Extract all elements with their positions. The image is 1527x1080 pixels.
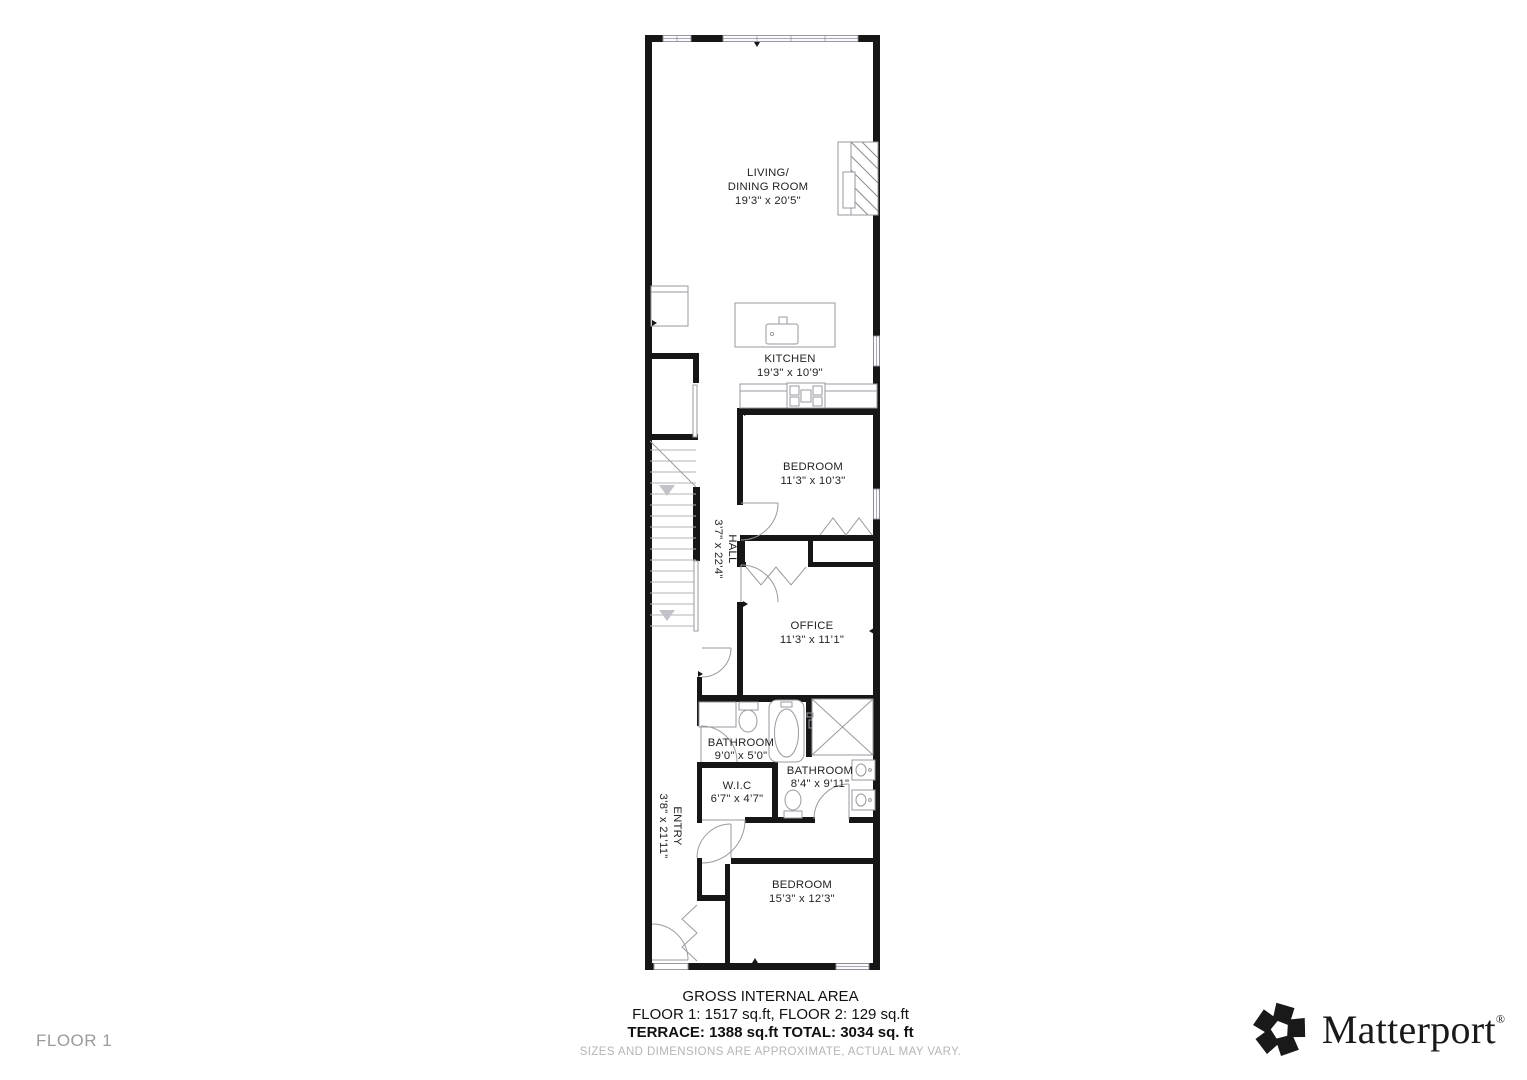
room-label-living-dining-line1: LIVING/ (747, 167, 790, 179)
staircase (650, 441, 698, 631)
terrace-total-line: TERRACE: 1388 sq.ft TOTAL: 3034 sq. ft (580, 1024, 962, 1042)
gross-internal-area-block: GROSS INTERNAL AREA FLOOR 1: 1517 sq.ft,… (580, 988, 962, 1060)
room-dims-office: 11’3" x 11’1" (780, 634, 844, 646)
bathroom2-sinks (852, 760, 875, 810)
fireplace (838, 129, 878, 215)
room-label-entry: ENTRY (671, 806, 683, 846)
kitchen-island (735, 303, 835, 347)
floor-number-label: FLOOR 1 (36, 1031, 112, 1051)
room-dims-bathroom-2: 8’4" x 9’11" (791, 778, 850, 790)
dimensions-disclaimer: SIZES AND DIMENSIONS ARE APPROXIMATE, AC… (580, 1044, 962, 1060)
gross-internal-area-title: GROSS INTERNAL AREA (580, 988, 962, 1006)
room-dims-bedroom-1: 11’3" x 10’3" (780, 475, 845, 487)
front-door-threshold (654, 964, 688, 970)
room-dims-entry: 3’8" x 21’11" (657, 793, 669, 858)
room-label-living-dining-line2: DINING ROOM (728, 181, 809, 193)
floorplan-page: LIVING/ DINING ROOM 19’3" x 20’5" KITCHE… (0, 0, 1527, 1080)
room-dims-wic: 6’7" x 4’7" (711, 793, 764, 805)
kitchen-counter-cooktop (740, 383, 877, 408)
bathroom1-toilet (739, 702, 758, 732)
room-dims-hall: 3’7" x 22’4" (712, 519, 724, 578)
room-label-bathroom-2: BATHROOM (787, 765, 853, 777)
bathroom1-vanity (699, 702, 736, 727)
shower (807, 699, 873, 755)
pantry-sliding-door (693, 385, 697, 437)
matterport-wordmark: Matterport (1322, 1007, 1496, 1052)
room-label-hall: HALL (726, 534, 738, 563)
room-label-kitchen: KITCHEN (764, 353, 815, 365)
matterport-pinwheel-icon (1251, 1000, 1309, 1058)
registered-trademark-symbol: ® (1496, 1012, 1505, 1026)
matterport-logo: Matterport® (1251, 1000, 1505, 1058)
room-label-wic: W.I.C (723, 780, 752, 792)
room-label-office: OFFICE (791, 620, 834, 632)
bathtub (769, 700, 804, 762)
refrigerator (651, 286, 688, 326)
room-dims-living-dining: 19’3" x 20’5" (735, 195, 801, 207)
floor-areas-line: FLOOR 1: 1517 sq.ft, FLOOR 2: 129 sq.ft (580, 1006, 962, 1024)
room-dims-kitchen: 19’3" x 10’9" (757, 367, 823, 379)
room-label-bedroom-2: BEDROOM (772, 879, 832, 891)
stair-rail (694, 561, 698, 631)
room-label-bathroom-1: BATHROOM (708, 737, 774, 749)
room-dims-bedroom-2: 15’3" x 12’3" (769, 893, 835, 905)
floorplan-drawing: LIVING/ DINING ROOM 19’3" x 20’5" KITCHE… (0, 0, 1527, 1080)
bathroom2-toilet (784, 790, 802, 818)
room-dims-bathroom-1: 9’0" x 5’0" (715, 750, 768, 762)
room-label-bedroom-1: BEDROOM (783, 461, 843, 473)
